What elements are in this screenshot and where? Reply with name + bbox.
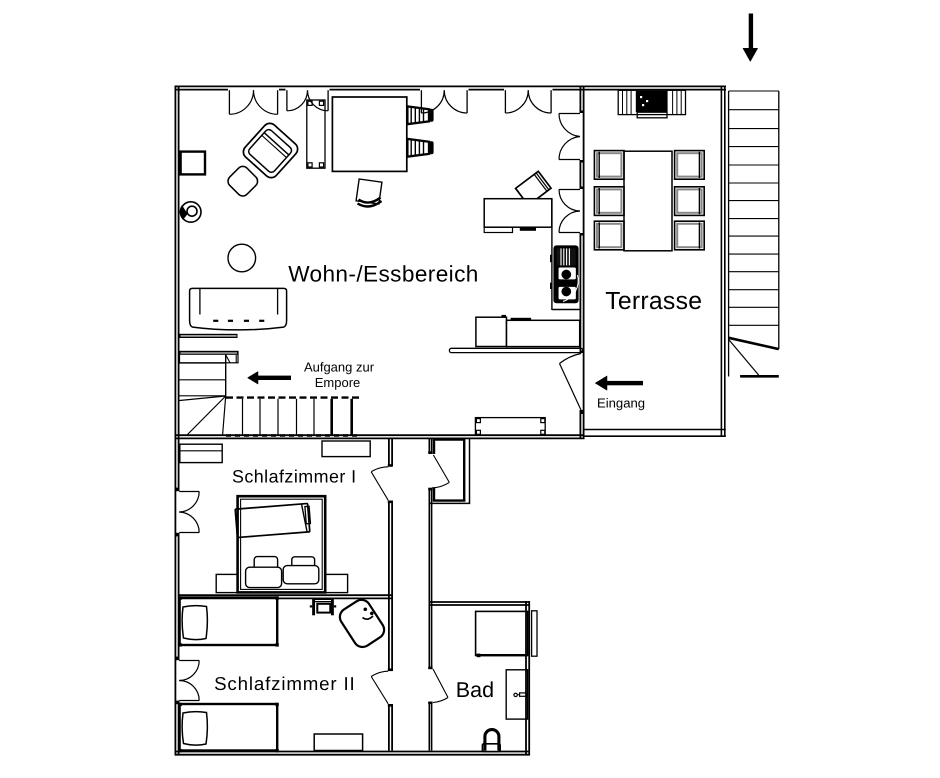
svg-text:Wohn-/Essbereich: Wohn-/Essbereich: [288, 262, 479, 287]
svg-text:Empore: Empore: [315, 375, 361, 390]
svg-text:Bad: Bad: [456, 678, 494, 702]
svg-text:Schlafzimmer II: Schlafzimmer II: [214, 673, 356, 694]
svg-text:Aufgang zur: Aufgang zur: [304, 359, 375, 374]
svg-text:Eingang: Eingang: [597, 396, 645, 411]
svg-text:Schlafzimmer I: Schlafzimmer I: [232, 467, 357, 487]
svg-text:Terrasse: Terrasse: [605, 288, 702, 315]
